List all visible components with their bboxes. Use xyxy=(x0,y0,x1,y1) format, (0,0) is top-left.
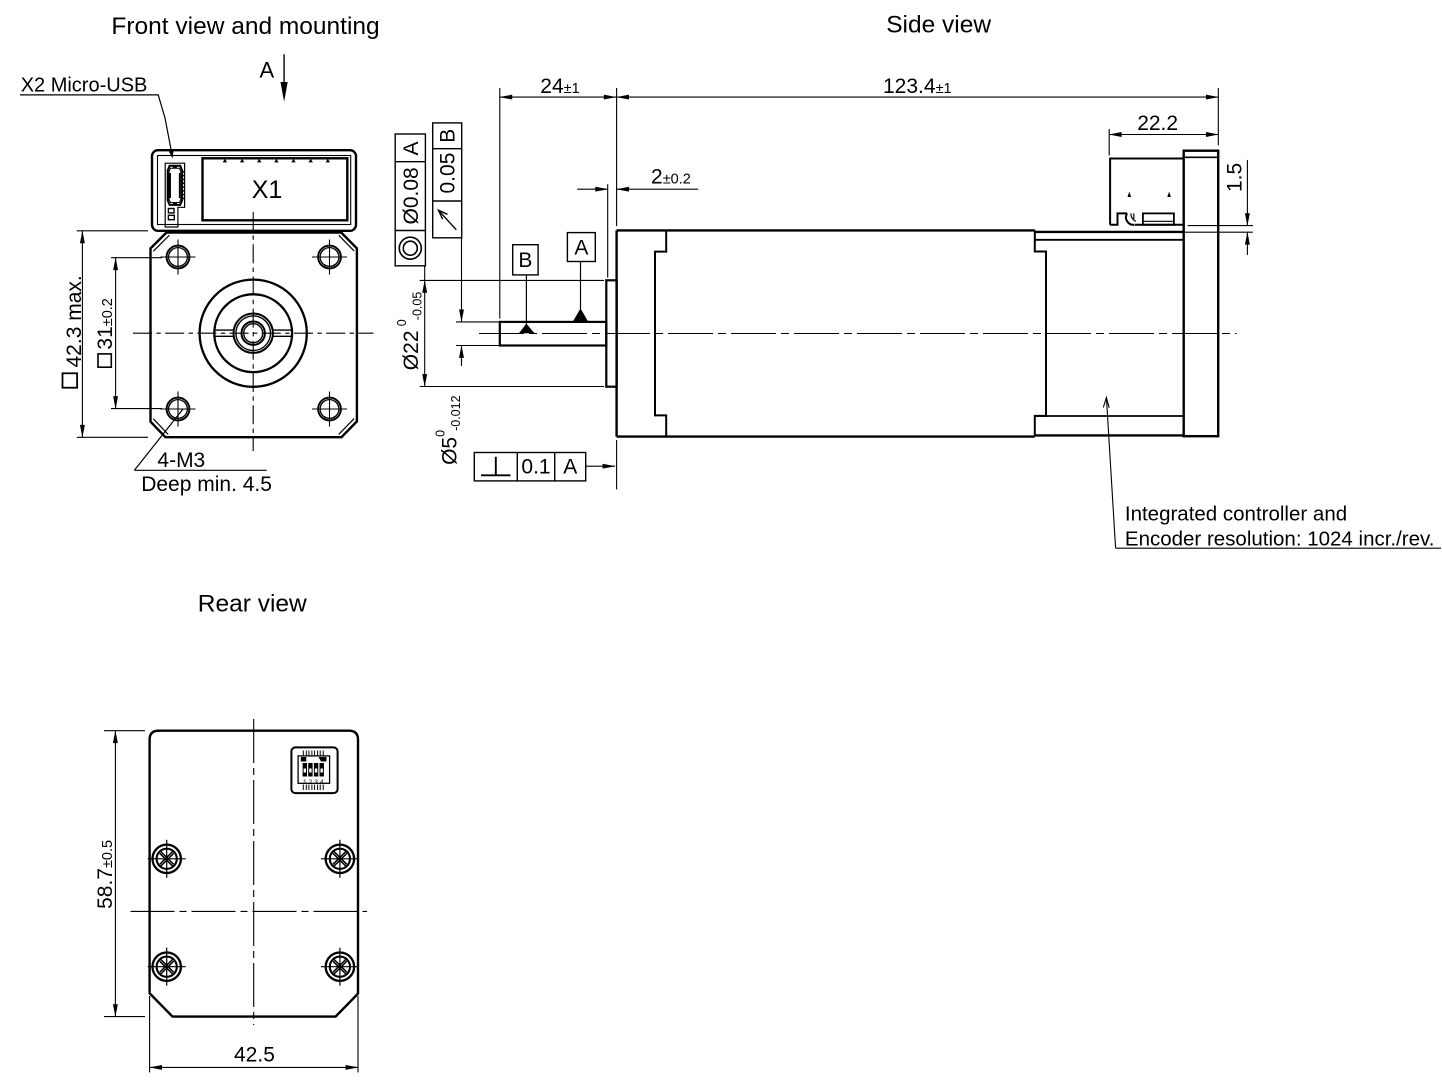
svg-text:0.1: 0.1 xyxy=(521,456,550,479)
svg-text:42.5: 42.5 xyxy=(234,1044,275,1067)
svg-text:Side view: Side view xyxy=(886,11,991,38)
svg-text:1.5: 1.5 xyxy=(1224,163,1247,192)
svg-text:Encoder resolution: 1024 incr.: Encoder resolution: 1024 incr./rev. xyxy=(1125,528,1435,551)
svg-text:42.3 max.: 42.3 max. xyxy=(63,275,86,367)
svg-text:4-M3: 4-M3 xyxy=(157,449,205,472)
svg-text:A: A xyxy=(563,456,577,479)
svg-text:3: 3 xyxy=(314,779,318,786)
svg-text:A: A xyxy=(260,58,275,83)
svg-text:24±1: 24±1 xyxy=(540,75,579,98)
svg-text:4: 4 xyxy=(320,779,324,786)
svg-text:A: A xyxy=(400,141,423,155)
svg-text:0: 0 xyxy=(395,319,409,326)
svg-text:58.7±0.5: 58.7±0.5 xyxy=(94,840,117,909)
svg-text:Deep min. 4.5: Deep min. 4.5 xyxy=(141,473,272,496)
svg-text:Rear view: Rear view xyxy=(198,591,307,618)
svg-text:A: A xyxy=(574,237,588,260)
svg-text:Front view and mounting: Front view and mounting xyxy=(111,13,379,40)
svg-text:B: B xyxy=(437,129,460,143)
svg-text:31±0.2: 31±0.2 xyxy=(94,298,117,349)
svg-text:X2 Micro-USB: X2 Micro-USB xyxy=(21,74,148,96)
svg-text:0: 0 xyxy=(433,430,447,437)
svg-text:B: B xyxy=(518,249,532,272)
svg-text:X1: X1 xyxy=(252,176,283,204)
svg-text:22.2: 22.2 xyxy=(1137,112,1178,135)
svg-text:-0.05: -0.05 xyxy=(410,292,424,321)
svg-text:123.4±1: 123.4±1 xyxy=(883,75,952,98)
svg-text:Ø5: Ø5 xyxy=(438,437,461,465)
svg-text:Integrated controller and: Integrated controller and xyxy=(1125,502,1347,525)
svg-text:1: 1 xyxy=(303,779,307,786)
svg-text:Ø22: Ø22 xyxy=(400,330,423,370)
svg-text:2±0.2: 2±0.2 xyxy=(651,165,691,188)
svg-text:2: 2 xyxy=(309,779,313,786)
svg-text:0.05: 0.05 xyxy=(437,153,460,194)
svg-text:-0.012: -0.012 xyxy=(449,395,463,430)
svg-text:Ø0.08: Ø0.08 xyxy=(400,167,423,224)
